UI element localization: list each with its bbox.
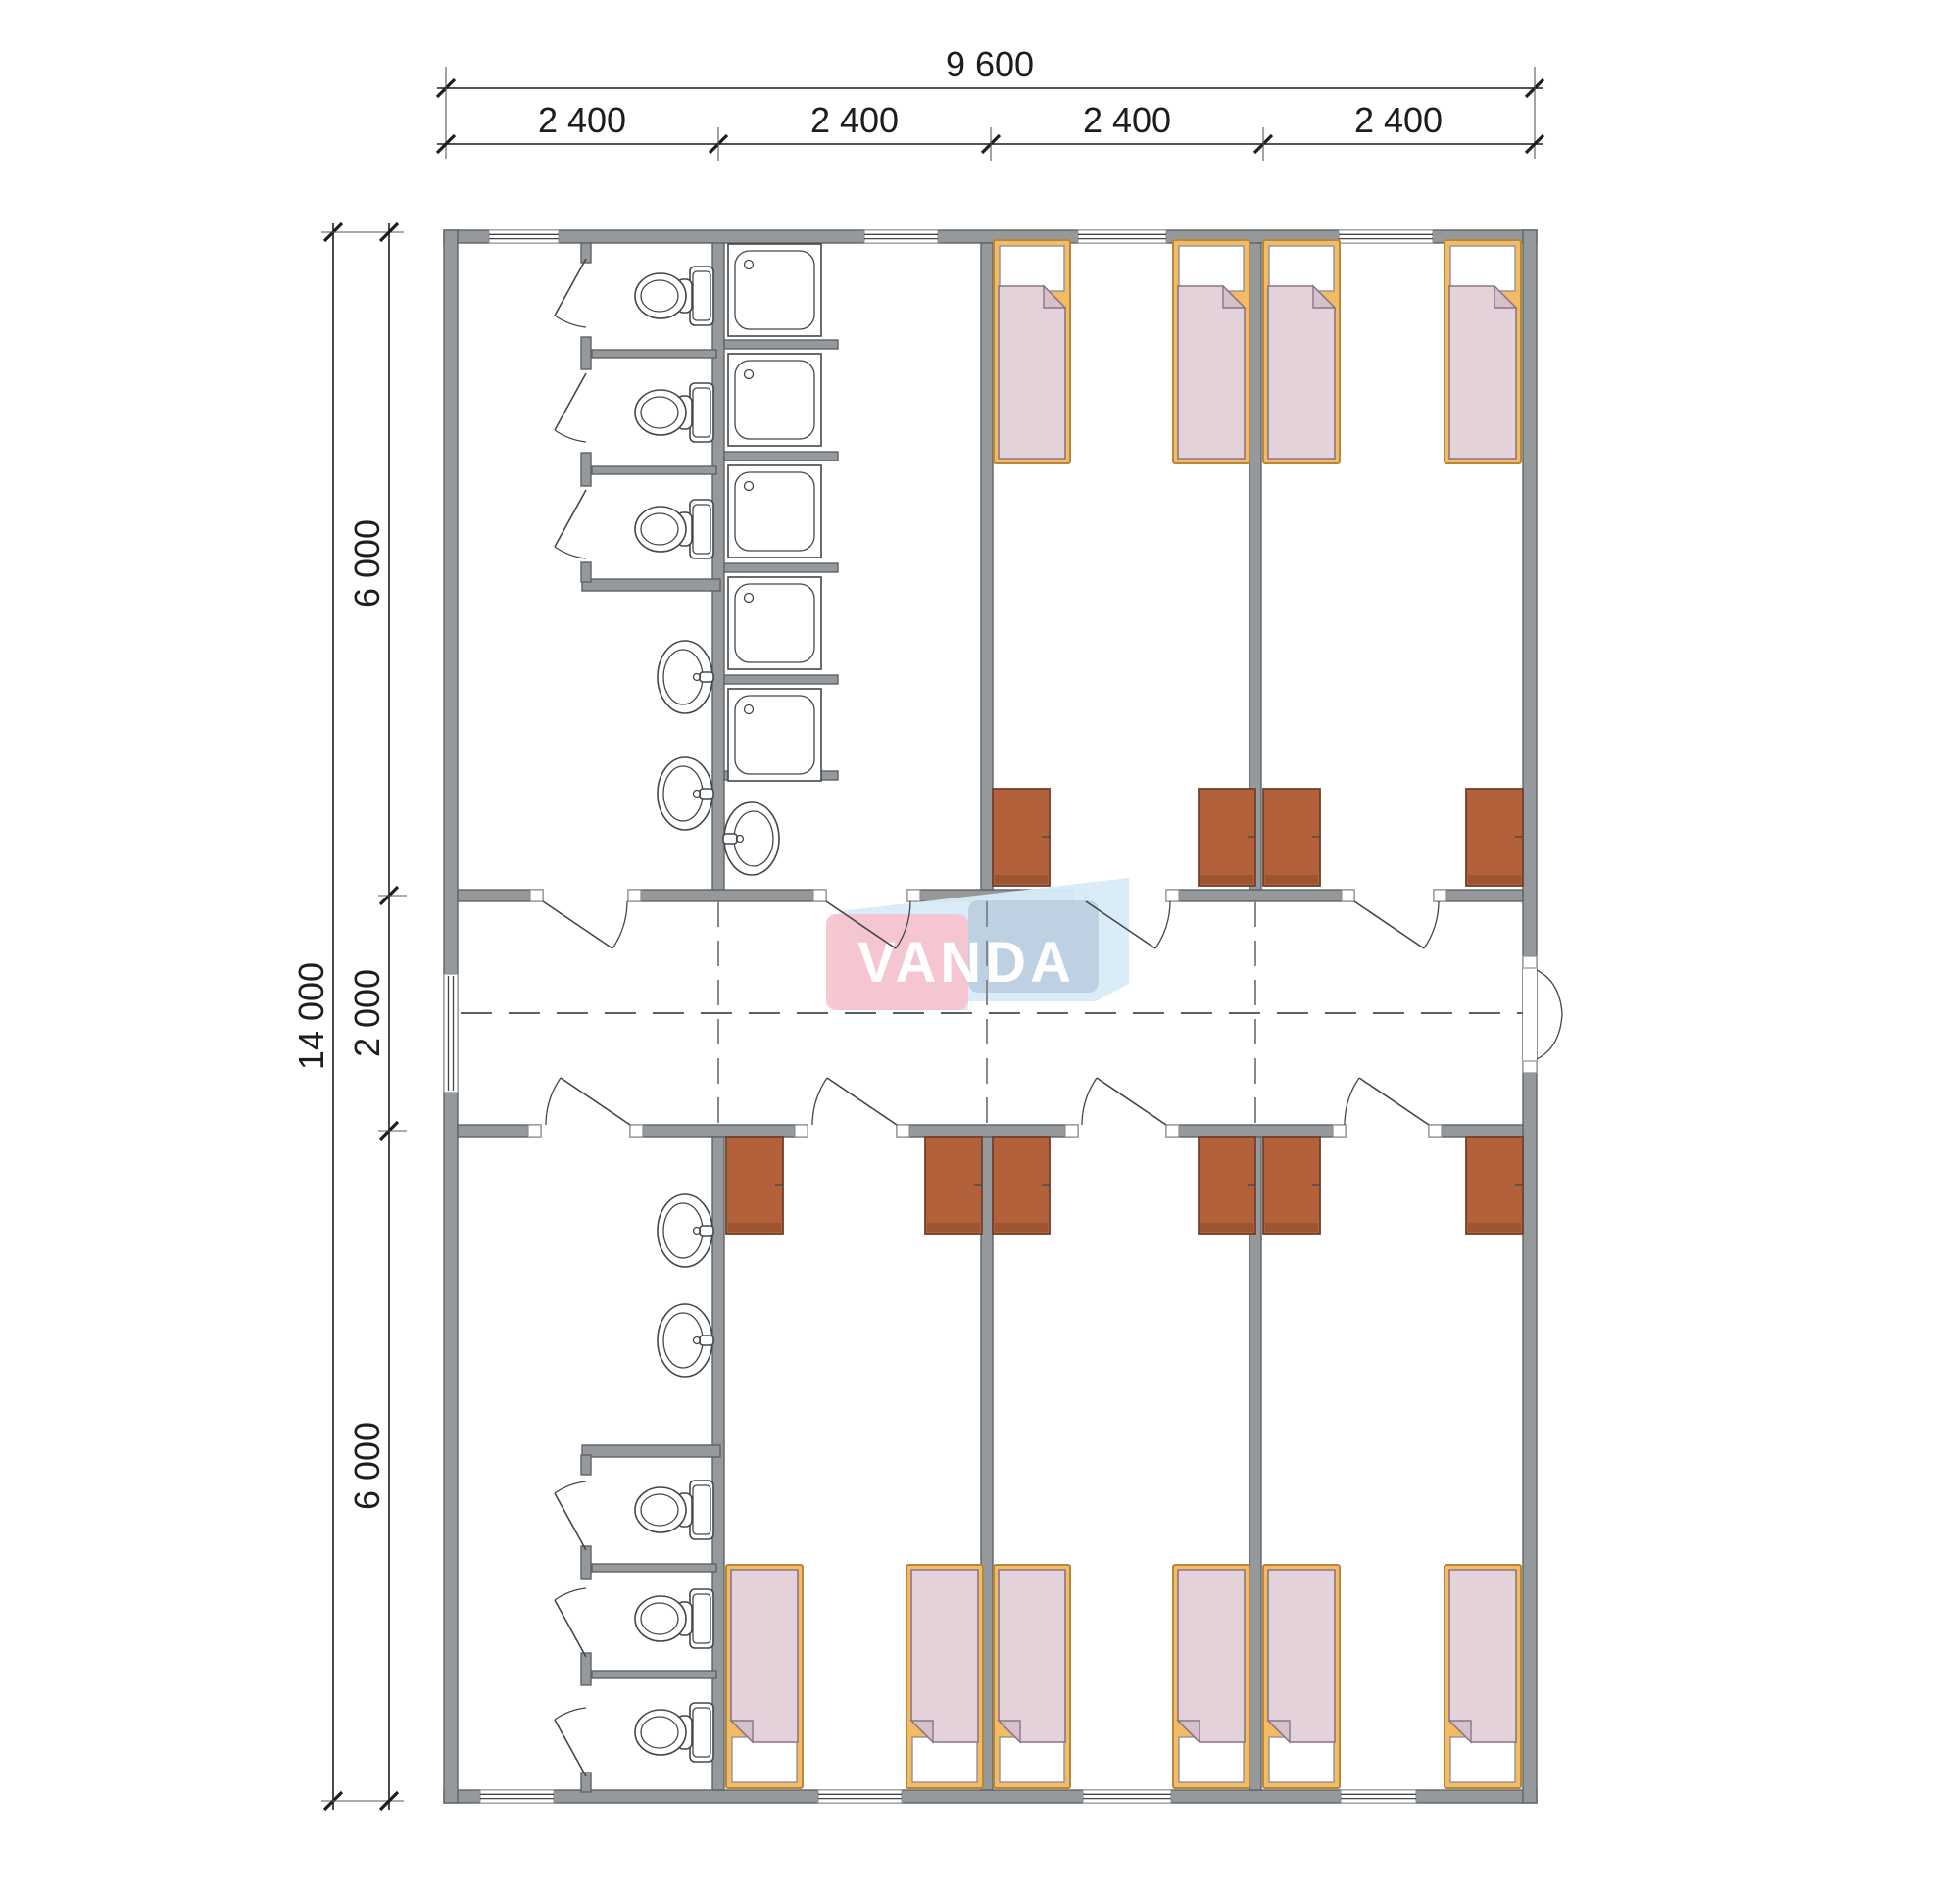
- bed: [994, 1565, 1070, 1788]
- entrance-door-west: [444, 974, 458, 1093]
- stall-door: [555, 1588, 586, 1657]
- shower-tray: [728, 465, 821, 558]
- stall-post: [581, 337, 591, 369]
- wardrobe: [726, 1137, 783, 1234]
- door-jamb: [1166, 1125, 1179, 1137]
- toilet: [635, 1481, 713, 1539]
- stall-door: [555, 1708, 586, 1776]
- bed: [1263, 240, 1340, 463]
- stall-door: [555, 1481, 586, 1550]
- door-jamb: [907, 890, 920, 901]
- stall-door: [555, 490, 586, 558]
- stall-partition: [582, 579, 720, 591]
- dim-left-segment: 2 000: [347, 969, 387, 1057]
- toilet: [635, 267, 713, 325]
- dim-left-segment: 6 000: [347, 1422, 387, 1510]
- corridor-wall: [1166, 1125, 1346, 1137]
- dim-top-segment: 2 400: [538, 100, 626, 140]
- room-door: [1082, 1078, 1166, 1125]
- dim-top-overall: 9 600: [946, 44, 1034, 84]
- dim-top-segment: 2 400: [810, 100, 899, 140]
- dim-left-overall: 14 000: [291, 962, 331, 1070]
- sink: [658, 757, 713, 830]
- stall-post: [581, 562, 591, 582]
- bed: [1173, 1565, 1249, 1788]
- room-door: [546, 1078, 630, 1125]
- shower-partition: [724, 340, 838, 349]
- door-jamb: [528, 1125, 541, 1137]
- shower-tray: [728, 577, 821, 669]
- door-jamb: [1342, 890, 1354, 901]
- wardrobe: [1199, 789, 1255, 886]
- window: [1078, 230, 1166, 243]
- bed: [994, 240, 1070, 463]
- bed: [1445, 240, 1521, 463]
- bed: [1445, 1565, 1521, 1788]
- toilet: [635, 1589, 713, 1648]
- dim-left-segment: 6 000: [347, 519, 387, 607]
- window: [1083, 1790, 1171, 1803]
- partition-wall: [981, 243, 993, 890]
- bed: [1173, 240, 1249, 463]
- window: [489, 230, 559, 243]
- stall-door: [555, 259, 586, 327]
- partition-wall: [1249, 1137, 1261, 1790]
- door-jamb: [1166, 890, 1179, 901]
- toilet: [635, 383, 713, 442]
- corridor-wall: [897, 1125, 1078, 1137]
- vanda-watermark: VANDA: [826, 878, 1129, 1010]
- stall-post: [581, 1455, 591, 1475]
- door-jamb: [1434, 890, 1446, 901]
- floor-plan-drawing: VANDA 9 600 2 400 2 400 2 400 2 400: [0, 0, 1960, 1894]
- door-jamb: [795, 1125, 808, 1137]
- floor-plan-canvas: VANDA 9 600 2 400 2 400 2 400 2 400: [0, 0, 1960, 1894]
- window: [864, 230, 938, 243]
- wardrobe: [1263, 789, 1320, 886]
- door-jamb: [1429, 1125, 1442, 1137]
- exit-door-east: [1523, 956, 1562, 1073]
- stall-partition: [592, 466, 716, 474]
- door-jamb: [897, 1125, 909, 1137]
- sink: [658, 1304, 713, 1377]
- partition-wall: [712, 1137, 724, 1790]
- wardrobe: [993, 1137, 1050, 1234]
- bed: [906, 1565, 983, 1788]
- building-walls: [444, 230, 1537, 1803]
- door-jamb: [630, 1125, 643, 1137]
- door-jamb: [628, 890, 641, 901]
- door-jamb: [1333, 1125, 1346, 1137]
- sink: [658, 641, 713, 713]
- shower-partition: [724, 563, 838, 572]
- wardrobe: [1466, 789, 1523, 886]
- window: [1341, 1790, 1416, 1803]
- toilet: [635, 500, 713, 558]
- room-door: [543, 901, 627, 948]
- sink: [723, 802, 779, 875]
- room-door: [1345, 1078, 1429, 1125]
- logo-text: VANDA: [857, 931, 1075, 995]
- toilet: [635, 1703, 713, 1762]
- stall-post: [581, 1546, 591, 1579]
- door-jamb: [813, 890, 826, 901]
- sink: [658, 1194, 713, 1267]
- corridor-wall: [1429, 1125, 1523, 1137]
- shower-partition: [724, 675, 838, 684]
- door-jamb: [530, 890, 543, 901]
- corridor-wall: [628, 890, 826, 901]
- stall-post: [581, 1653, 591, 1685]
- shower-tray: [728, 244, 821, 336]
- corridor-wall: [1434, 890, 1523, 901]
- corridor-wall: [630, 1125, 808, 1137]
- wardrobe: [1263, 1137, 1320, 1234]
- stall-post: [581, 453, 591, 486]
- window: [818, 1790, 902, 1803]
- bed: [726, 1565, 803, 1788]
- stall-partition: [592, 1671, 716, 1678]
- shower-tray: [728, 354, 821, 446]
- stall-partition: [582, 1445, 720, 1457]
- stall-partition: [592, 350, 716, 358]
- stall-door: [555, 373, 586, 442]
- room-door: [812, 1078, 897, 1125]
- room-door: [1354, 901, 1439, 948]
- stall-partition: [592, 1564, 716, 1572]
- shower-partition: [724, 452, 838, 461]
- wardrobe: [993, 789, 1050, 886]
- window: [1339, 230, 1433, 243]
- door-jamb: [1065, 1125, 1078, 1137]
- bed: [1263, 1565, 1340, 1788]
- wardrobe: [1199, 1137, 1255, 1234]
- dim-top-segment: 2 400: [1083, 100, 1171, 140]
- wardrobe: [1466, 1137, 1523, 1234]
- corridor-wall: [1166, 890, 1354, 901]
- dim-top-segment: 2 400: [1354, 100, 1443, 140]
- shower-tray: [728, 689, 821, 781]
- wardrobe: [925, 1137, 982, 1234]
- window: [480, 1790, 554, 1803]
